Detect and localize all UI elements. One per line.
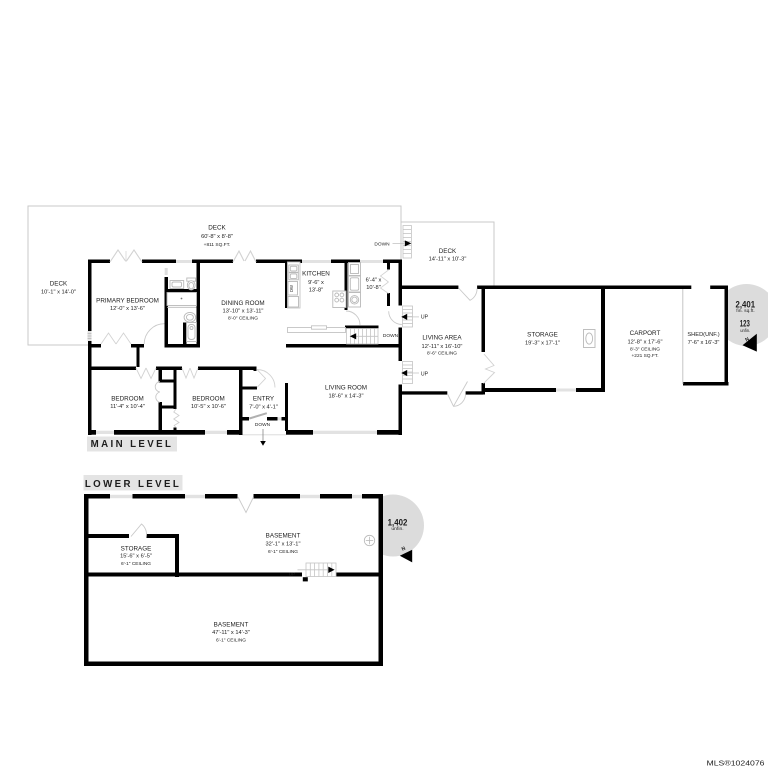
svg-text:BEDROOM: BEDROOM: [111, 396, 144, 403]
svg-text:PRIMARY BEDROOM: PRIMARY BEDROOM: [96, 298, 159, 305]
svg-text:8'-0" CEILING: 8'-0" CEILING: [228, 316, 258, 322]
svg-text:12'-8" x 17'-6": 12'-8" x 17'-6": [628, 340, 663, 346]
svg-text:123: 123: [740, 318, 750, 328]
svg-text:UP: UP: [289, 572, 296, 578]
svg-text:13'-10" x 13'-11": 13'-10" x 13'-11": [223, 309, 264, 315]
svg-text:DINING ROOM: DINING ROOM: [221, 300, 264, 307]
svg-text:DOWN: DOWN: [374, 241, 390, 247]
svg-text:32'-1" x 13'-1": 32'-1" x 13'-1": [266, 542, 301, 548]
svg-text:8'-3" CEILING: 8'-3" CEILING: [630, 347, 660, 353]
svg-text:DECK: DECK: [208, 225, 226, 232]
svg-text:KITCHEN: KITCHEN: [302, 271, 330, 278]
svg-text:DW: DW: [289, 285, 294, 292]
svg-text:fin. sq.ft.: fin. sq.ft.: [736, 308, 755, 313]
svg-text:60'-8" x 8'-8": 60'-8" x 8'-8": [201, 234, 233, 240]
svg-text:unfin.: unfin.: [740, 328, 750, 333]
svg-text:DOWN: DOWN: [255, 422, 271, 428]
svg-text:BEDROOM: BEDROOM: [192, 396, 225, 403]
svg-text:6'-4" x: 6'-4" x: [366, 278, 382, 284]
svg-text:9'-6" x: 9'-6" x: [308, 280, 324, 286]
svg-text:BASEMENT: BASEMENT: [266, 533, 301, 540]
svg-text:BASEMENT: BASEMENT: [214, 622, 249, 629]
svg-text:LOWER LEVEL: LOWER LEVEL: [85, 479, 181, 490]
svg-text:STORAGE: STORAGE: [121, 546, 152, 553]
svg-text:10'-8": 10'-8": [366, 285, 381, 291]
svg-text:DECK: DECK: [50, 281, 68, 288]
svg-text:8'-6" CEILING: 8'-6" CEILING: [427, 351, 457, 357]
svg-text:STORAGE: STORAGE: [527, 332, 558, 339]
svg-text:MAIN LEVEL: MAIN LEVEL: [91, 439, 174, 450]
svg-text:11'-4" x 10'-4": 11'-4" x 10'-4": [110, 404, 145, 410]
svg-text:+811 SQ.FT.: +811 SQ.FT.: [204, 242, 231, 248]
svg-text:unfin.: unfin.: [391, 526, 403, 531]
svg-text:SHED(UNF.): SHED(UNF.): [687, 332, 719, 338]
svg-text:CARPORT: CARPORT: [630, 330, 661, 337]
svg-text:DOWN: DOWN: [383, 333, 399, 339]
svg-text:UP: UP: [421, 314, 429, 320]
svg-text:LIVING AREA: LIVING AREA: [422, 335, 462, 342]
svg-text:6'-1" CEILING: 6'-1" CEILING: [216, 637, 246, 643]
svg-text:12'-11" x 16'-10": 12'-11" x 16'-10": [422, 344, 463, 350]
svg-text:6'-1" CEILING: 6'-1" CEILING: [268, 549, 298, 555]
svg-text:+221 SQ.FT.: +221 SQ.FT.: [631, 353, 658, 359]
svg-text:UP: UP: [421, 372, 429, 378]
svg-text:7'-6" x 16'-3": 7'-6" x 16'-3": [688, 340, 720, 346]
svg-text:47'-11" x 14'-3": 47'-11" x 14'-3": [212, 630, 250, 636]
svg-text:14'-11" x 10'-3": 14'-11" x 10'-3": [429, 257, 467, 263]
svg-text:DECK: DECK: [439, 248, 457, 255]
svg-text:18'-6" x 14'-3": 18'-6" x 14'-3": [329, 394, 364, 400]
svg-text:LIVING ROOM: LIVING ROOM: [325, 385, 367, 392]
svg-text:6'-1" CEILING: 6'-1" CEILING: [121, 561, 151, 567]
svg-text:19'-3" x 17'-1": 19'-3" x 17'-1": [525, 341, 560, 347]
svg-text:13'-8": 13'-8": [309, 288, 324, 294]
svg-text:10'-5" x 10'-6": 10'-5" x 10'-6": [191, 404, 226, 410]
svg-text:10'-1" x 14'-0": 10'-1" x 14'-0": [41, 290, 76, 296]
svg-text:ENTRY: ENTRY: [253, 396, 275, 403]
svg-text:7'-0" x 4'-1": 7'-0" x 4'-1": [249, 405, 278, 411]
svg-text:12'-0" x 13'-6": 12'-0" x 13'-6": [110, 306, 145, 312]
svg-text:MLS®1024076: MLS®1024076: [707, 758, 765, 767]
svg-text:15'-6" x 6'-5": 15'-6" x 6'-5": [120, 554, 152, 560]
